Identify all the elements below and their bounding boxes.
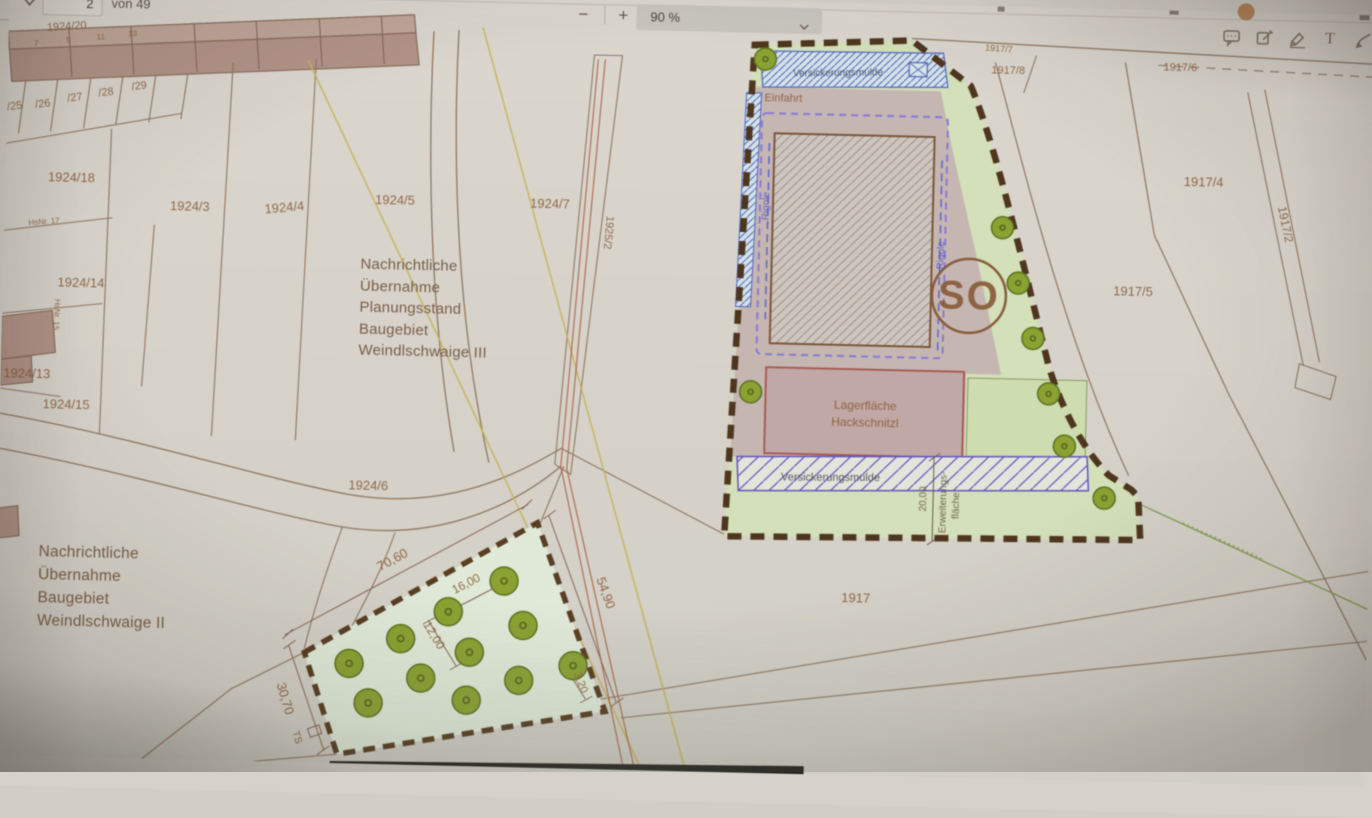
map-label: Lagerfläche [834, 398, 897, 413]
map-label: Einfahrt [764, 92, 802, 105]
map-label: Versickerungsmulde [781, 471, 880, 484]
zoom-out-button[interactable]: − [569, 1, 598, 27]
building-hatched [770, 133, 935, 347]
trafo-icon [909, 62, 927, 76]
tree-icon [1007, 272, 1030, 295]
chrome-artifact [998, 7, 1005, 12]
map-label: 1917/8 [991, 64, 1025, 77]
tree-icon [386, 624, 415, 653]
toolbar-divider [604, 5, 605, 24]
zoom-level-value: 90 % [650, 9, 680, 25]
map-label: Hackschnitzl [831, 415, 899, 431]
note-weindlschwaige-3: Nachrichtliche Übernahme Planungsstand B… [358, 254, 489, 364]
map-label: 1924/13 [3, 365, 50, 381]
map-paper [0, 0, 1372, 787]
page-total-label: von 49 [111, 0, 150, 12]
note-line: Nachrichtliche [360, 254, 489, 279]
map-label: 1924/15 [42, 396, 89, 412]
tree-icon [335, 649, 364, 678]
map-label: /29 [131, 80, 148, 94]
map-label: SO [937, 273, 1000, 318]
page-number-box [42, 0, 103, 16]
tree-icon [354, 689, 383, 718]
map-label: 11 [96, 32, 105, 41]
map-label: Versickerungsmulde [793, 67, 884, 79]
map-label: 13 [128, 29, 138, 38]
map-label: 1924/3 [170, 198, 210, 214]
map-label: 1917/4 [1184, 174, 1224, 190]
map-label: Rigole [761, 191, 773, 220]
tree-icon [504, 666, 533, 695]
page-down-button[interactable] [17, 0, 42, 14]
tree-icon [739, 381, 762, 404]
map-label: 20,00 [918, 486, 930, 512]
pen-icon [1353, 30, 1372, 49]
note-weindlschwaige-2: Nachrichtliche Übernahme Baugebiet Weind… [37, 540, 167, 635]
map-label: Rigole [936, 241, 948, 270]
map-label: 1924/6 [348, 477, 388, 493]
map-label: 1924/5 [375, 192, 415, 208]
note-line: Weindlschwaige II [37, 609, 166, 635]
tree-icon [406, 664, 435, 693]
map-label: 1917/7 [985, 43, 1013, 55]
map-label: /25 [6, 100, 23, 114]
highlighter-icon [1287, 29, 1306, 48]
map-label: /28 [98, 86, 115, 100]
note-line: Übernahme [38, 563, 167, 589]
map-label: HsNr. 15 [51, 299, 62, 331]
text-tool-icon: T [1325, 30, 1335, 48]
map-label: /27 [67, 91, 84, 105]
draw-tool-button[interactable] [1353, 30, 1372, 50]
comment-tool-button[interactable] [1221, 27, 1241, 47]
text-tool-button[interactable]: T [1320, 29, 1340, 49]
signature-icon [1254, 28, 1273, 47]
tree-icon [509, 611, 538, 640]
note-line: Nachrichtliche [38, 540, 167, 566]
map-label: 1924/20 [47, 19, 87, 34]
tree-icon [434, 597, 463, 626]
comment-icon [1221, 27, 1240, 46]
tree-icon [1053, 435, 1076, 458]
map-label: Erweiterungs- [937, 471, 949, 533]
chrome-artifact [1170, 11, 1179, 15]
tree-icon [991, 216, 1014, 239]
sign-tool-button[interactable] [1254, 28, 1274, 48]
tree-icon [452, 686, 481, 715]
chevron-down-icon [798, 16, 811, 42]
page-number-input[interactable] [43, 0, 102, 15]
map-label: 1924/4 [264, 198, 305, 216]
pdf-page-canvas[interactable]: 1924/20791113/25/26/27/28/291924/18HsNr.… [0, 0, 1372, 787]
note-line: Baugebiet [37, 586, 166, 612]
tree-icon [455, 638, 484, 667]
map-label: 1917/5 [1113, 283, 1153, 299]
zoom-level-select[interactable]: 90 % [636, 4, 823, 34]
map-label: 1924/18 [48, 169, 95, 185]
tree-icon [1022, 327, 1045, 350]
map-label: fläche [951, 492, 963, 519]
tree-icon [1037, 383, 1060, 406]
note-line: Übernahme [360, 275, 489, 300]
map-label: 1917/6 [1163, 61, 1197, 74]
zoom-in-button[interactable]: + [609, 2, 638, 28]
browser-avatar-icon [1237, 3, 1254, 20]
annotation-tools: T [1221, 27, 1372, 51]
note-line: Baugebiet [359, 318, 488, 343]
map-label: /26 [34, 97, 51, 111]
map-label: 1924/7 [530, 196, 570, 212]
chrome-artifact [1360, 15, 1370, 20]
chevron-down-icon [21, 0, 37, 10]
note-line: Weindlschwaige III [358, 340, 487, 365]
highlight-tool-button[interactable] [1287, 28, 1307, 48]
map-label: 1917 [841, 590, 870, 606]
note-line: Planungsstand [359, 297, 488, 322]
tree-icon [490, 567, 519, 596]
pdf-viewer: 1924/20791113/25/26/27/28/291924/18HsNr.… [0, 0, 1372, 787]
photographed-screen: 1924/20791113/25/26/27/28/291924/18HsNr.… [0, 0, 1372, 818]
map-label: 1924/14 [57, 274, 104, 290]
tree-icon [754, 48, 777, 71]
tree-icon [1093, 487, 1116, 510]
